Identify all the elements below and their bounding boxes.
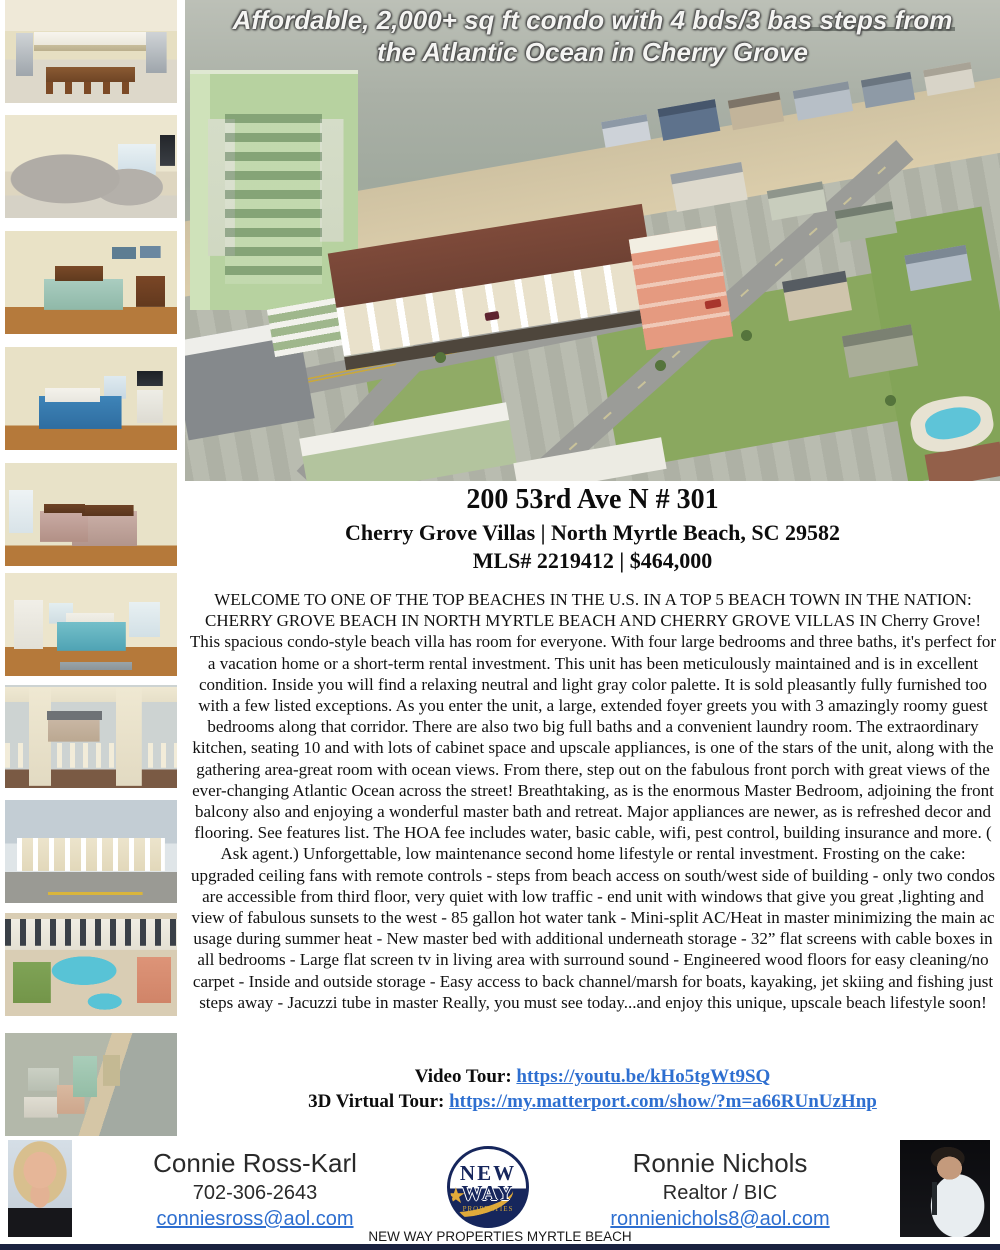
thumbnail-guest-bedroom-3-photo [5,463,177,566]
bottom-accent-bar [0,1244,1000,1250]
virtual-tour-link[interactable]: https://my.matterport.com/show/?m=a66RUn… [449,1091,877,1112]
brokerage-caption: NEW WAY PROPERTIES MYRTLE BEACH [340,1229,660,1244]
photo-palm-tree [885,395,896,406]
agent-left-name: Connie Ross-Karl [90,1148,420,1178]
thumbnail-master-bedroom-photo [5,573,177,676]
thumbnail-guest-bedroom-1-photo [5,231,177,334]
brokerage-logo-circle: NEW ★ WAY PROPERTIES [447,1146,529,1228]
agent-left-block: Connie Ross-Karl 702-306-2643 conniesros… [90,1148,420,1232]
logo-text-properties: PROPERTIES [450,1205,526,1213]
headline-overlay: Affordable, 2,000+ sq ft condo with 4 bd… [185,4,1000,68]
agent-left-email-link[interactable]: conniesross@aol.com [156,1208,353,1230]
agent-right-email-link[interactable]: ronnienichols8@aol.com [610,1208,829,1230]
virtual-tour-label: 3D Virtual Tour: [308,1091,444,1112]
thumbnail-kitchen-dining-photo [5,0,177,103]
virtual-tour-line: 3D Virtual Tour: https://my.matterport.c… [185,1089,1000,1114]
thumbnail-courtyard-pool-aerial-photo [5,913,177,1016]
thumbnail-living-room-photo [5,115,177,218]
main-aerial-photo: Affordable, 2,000+ sq ft condo with 4 bd… [185,0,1000,481]
photo-palm-tree [655,360,666,371]
agent-right-name: Ronnie Nichols [555,1148,885,1178]
thumbnail-guest-bedroom-2-photo [5,347,177,450]
video-tour-link[interactable]: https://youtu.be/kHo5tgWt9SQ [516,1066,770,1087]
agent-photo-ronnie [900,1140,990,1237]
thumbnail-beach-town-aerial-photo [5,1033,177,1136]
agent-right-block: Ronnie Nichols Realtor / BIC ronnienicho… [555,1148,885,1232]
photo-palm-tree [435,352,446,363]
property-community-city: Cherry Grove Villas | North Myrtle Beach… [185,520,1000,546]
thumbnail-front-porch-photo [5,685,177,788]
listing-description: WELCOME TO ONE OF THE TOP BEACHES IN THE… [188,589,998,1013]
title-block: 200 53rd Ave N # 301 Cherry Grove Villas… [185,484,1000,574]
agent-photo-connie [8,1140,72,1237]
video-tour-label: Video Tour: [415,1066,512,1087]
property-address: 200 53rd Ave N # 301 [185,484,1000,516]
tour-links: Video Tour: https://youtu.be/kHo5tgWt9SQ… [185,1064,1000,1114]
photo-palm-tree [741,330,752,341]
agent-right-role: Realtor / BIC [555,1180,885,1206]
brokerage-logo: NEW ★ WAY PROPERTIES [447,1146,533,1232]
mls-and-price: MLS# 2219412 | $464,000 [185,548,1000,574]
agent-left-phone: 702-306-2643 [90,1180,420,1206]
video-tour-line: Video Tour: https://youtu.be/kHo5tgWt9SQ [185,1064,1000,1089]
thumbnail-building-exterior-photo [5,800,177,903]
photo-coral-building [629,226,733,350]
listing-flyer: Affordable, 2,000+ sq ft condo with 4 bd… [0,0,1000,1250]
logo-text-way: WAY [450,1181,526,1206]
